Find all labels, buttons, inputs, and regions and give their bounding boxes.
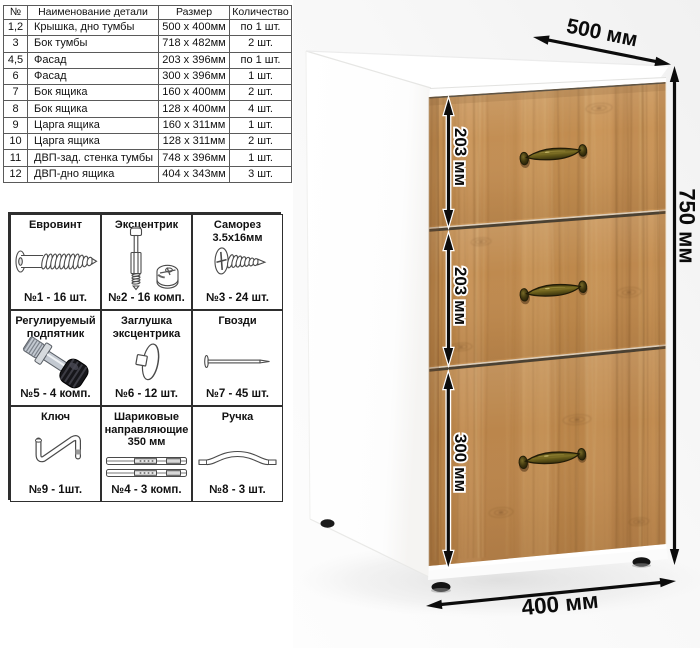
svg-text:203 мм: 203 мм — [451, 128, 470, 186]
svg-text:750 мм: 750 мм — [675, 188, 700, 263]
svg-text:203 мм: 203 мм — [451, 267, 470, 325]
svg-text:300 мм: 300 мм — [451, 434, 470, 492]
